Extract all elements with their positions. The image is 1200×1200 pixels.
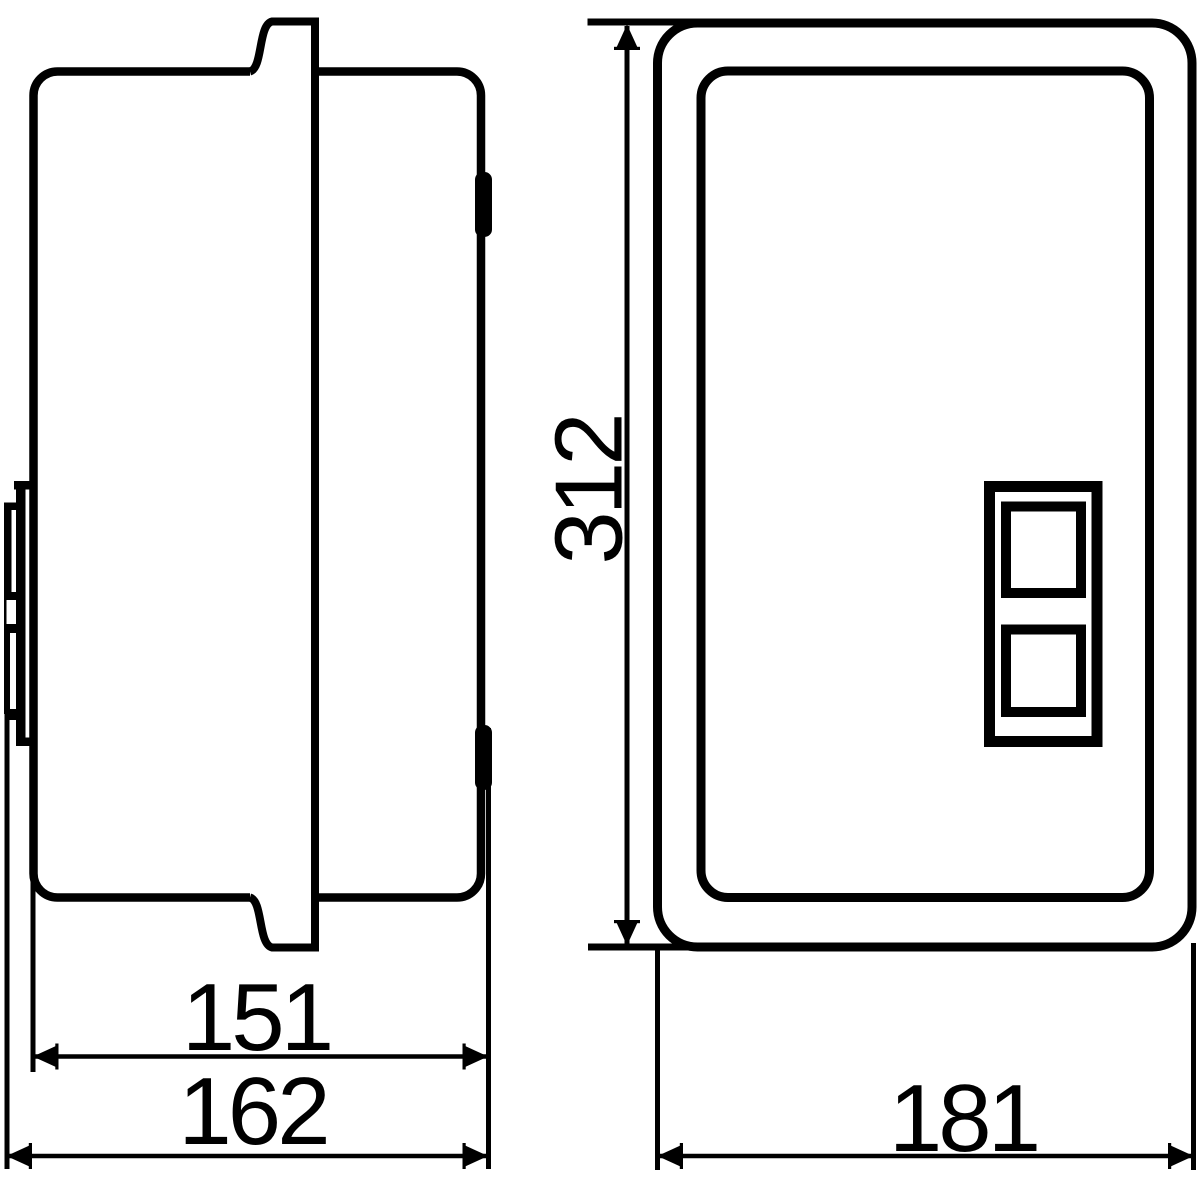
svg-text:181: 181 <box>889 1065 1037 1172</box>
svg-text:151: 151 <box>182 964 330 1071</box>
svg-text:162: 162 <box>178 1058 326 1165</box>
svg-text:312: 312 <box>536 416 643 564</box>
